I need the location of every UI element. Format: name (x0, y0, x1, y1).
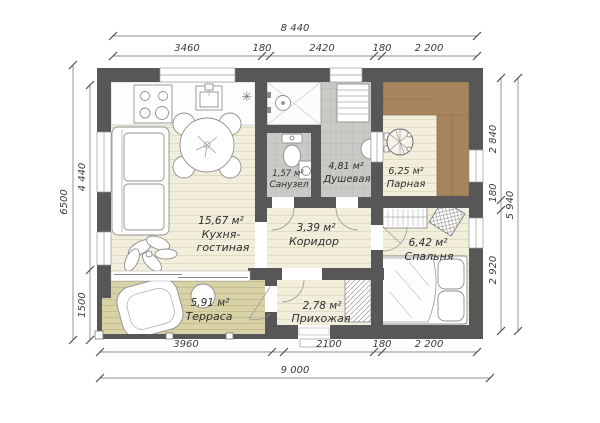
dimension-bottom-2: 2100 (316, 339, 341, 350)
room-label-steam-name: Парная (387, 179, 426, 190)
sliding-door (111, 271, 250, 281)
dining-table (173, 113, 241, 178)
pillow-icon (438, 259, 464, 289)
dimension-left-1: 4 440 (77, 163, 88, 192)
room-label-kitchen-living-name1: Кухня- (202, 228, 241, 241)
door-shower (336, 197, 358, 208)
room-label-kitchen-living-name2: гостиная (197, 241, 250, 254)
kitchen-sink-icon (196, 84, 222, 110)
door-hallway (282, 268, 322, 280)
door-steam-room (371, 132, 383, 162)
shelf-rack (337, 84, 369, 122)
dimension-top-5: 2 200 (415, 43, 444, 54)
window-right-steam (469, 150, 483, 182)
room-label-steam-area: 6,25 м² (388, 166, 423, 177)
dimension-bottom-3: 180 (372, 339, 391, 350)
wardrobe-bedroom (383, 207, 427, 228)
room-label-bathroom-name: Санузел (269, 180, 308, 190)
shower-valve-icon (267, 92, 271, 98)
sofa (112, 127, 169, 235)
room-label-bedroom-area: 6,42 м² (409, 237, 449, 249)
dimension-bottom-total: 9 000 (281, 365, 310, 376)
dimension-right-1: 2 840 (488, 125, 499, 154)
floor-plan-page: ✳ (0, 0, 600, 423)
room-label-hallway-area: 2,78 м² (303, 300, 343, 312)
room-label-terrace-name: Терраса (186, 310, 233, 323)
room-label-hallway-name: Прихожая (292, 312, 351, 325)
dimension-top-3: 2420 (309, 43, 334, 54)
room-label-corridor-name: Коридор (289, 235, 339, 248)
room-label-corridor-area: 3,39 м² (297, 222, 337, 234)
bed (379, 256, 467, 324)
dimension-right-2: 180 (488, 183, 499, 202)
dimension-left-2: 1500 (77, 292, 88, 317)
door-bedroom (371, 225, 383, 250)
door-bathroom (272, 197, 294, 208)
dimension-top-4: 180 (372, 43, 391, 54)
dimension-left-total: 6500 (59, 189, 70, 214)
pillow-icon (438, 291, 464, 321)
stove-icon (384, 129, 413, 155)
dimension-bottom-1: 3960 (173, 339, 198, 350)
shower-valve-icon (267, 107, 271, 113)
floor-plan-drawing: ✳ (0, 0, 600, 423)
window-top-kitchen (160, 68, 235, 82)
room-label-bathroom-area: 1,57 м² (272, 169, 304, 179)
shower-tray (267, 82, 321, 125)
room-label-kitchen-living-area: 15,67 м² (198, 215, 244, 227)
dimension-top-2: 180 (252, 43, 271, 54)
dimension-top-1: 3460 (174, 43, 199, 54)
fridge-star-icon: ✳ (242, 90, 253, 105)
door-terrace (265, 286, 277, 312)
dimension-right-3: 2 920 (488, 256, 499, 285)
window-top-shower (330, 68, 362, 82)
dimension-top-total: 8 440 (281, 23, 310, 34)
window-left-living-1 (97, 132, 111, 192)
dimension-bottom-4: 2 200 (415, 339, 444, 350)
cooktop-icon (134, 85, 172, 123)
room-label-terrace-area: 5,91 м² (191, 297, 231, 309)
window-right-bedroom (469, 218, 483, 248)
room-label-shower-area: 4,81 м² (328, 161, 363, 172)
room-label-shower-name: Душевая (322, 174, 370, 185)
window-left-living-2 (97, 232, 111, 265)
room-label-bedroom-name: Спальня (405, 250, 454, 263)
dimension-right-total: 5 940 (505, 191, 516, 220)
